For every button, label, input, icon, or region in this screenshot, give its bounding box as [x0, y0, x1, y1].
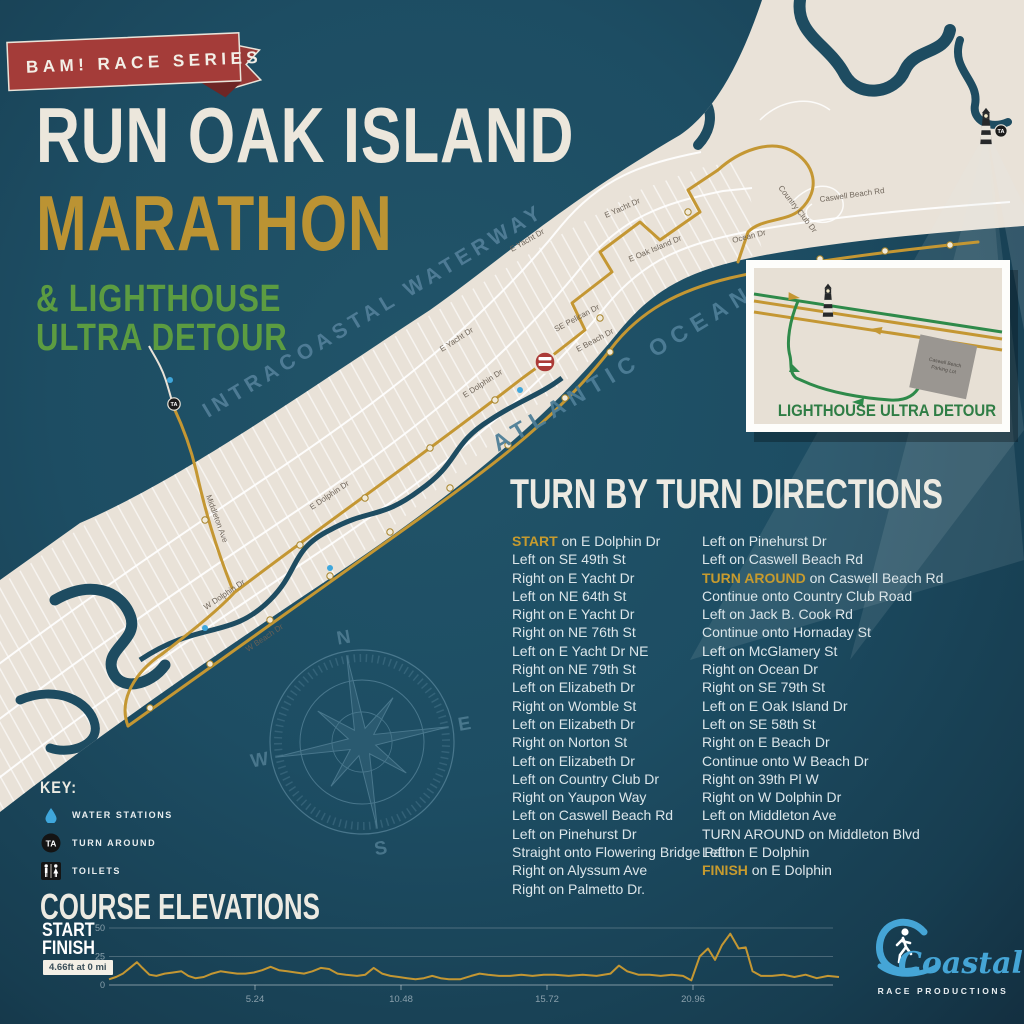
race-poster: TA	[0, 0, 1024, 1024]
key-turn-around: TA TURN AROUND	[40, 832, 173, 854]
key-label-turnaround: TURN AROUND	[72, 838, 156, 848]
y-axis-labels: 02550	[95, 923, 105, 990]
direction-item: Right on E Beach Dr	[702, 733, 1012, 751]
subtitle-ultra-detour: ULTRA DETOUR	[36, 317, 288, 359]
direction-item: Left on SE 58th St	[702, 715, 1012, 733]
svg-text:15.72: 15.72	[535, 994, 559, 1005]
direction-item: Left on Pinehurst Dr	[702, 532, 1012, 550]
directions-column-2: Left on Pinehurst Dr Left on Caswell Bea…	[702, 532, 1012, 880]
direction-item: Continue onto Country Club Road	[702, 587, 1012, 605]
coastal-race-productions-logo: Coastal RACE PRODUCTIONS	[868, 912, 1018, 1012]
logo-subtitle: RACE PRODUCTIONS	[868, 986, 1018, 996]
direction-item: TURN AROUND on Middleton Blvd	[702, 825, 1012, 843]
direction-item: Left on E Dolphin	[702, 843, 1012, 861]
event-title-line1: RUN OAK ISLAND	[36, 98, 726, 172]
key-label-toilets: TOILETS	[72, 866, 121, 876]
toilets-icon	[40, 861, 62, 881]
direction-item: Right on 39th Pl W	[702, 770, 1012, 788]
compass-n: N	[335, 627, 352, 650]
compass-e: E	[456, 713, 472, 736]
turn-by-turn-directions: TURN BY TURN DIRECTIONS START on E Dolph…	[510, 470, 1015, 532]
x-axis-labels: 5.2410.4815.7220.96	[246, 985, 705, 1005]
svg-text:0: 0	[100, 980, 105, 990]
svg-text:10.48: 10.48	[389, 994, 413, 1005]
compass-w: W	[249, 749, 270, 773]
direction-item: Left on E Oak Island Dr	[702, 697, 1012, 715]
turn-around-marker-middleton	[168, 398, 180, 410]
event-subtitle: & LIGHTHOUSE ULTRA DETOUR	[36, 280, 343, 358]
map-key: KEY: WATER STATIONS TA TURN AROUND	[40, 778, 173, 882]
direction-item: Right on SE 79th St	[702, 678, 1012, 696]
water-droplet-icon	[40, 805, 62, 825]
key-label-water: WATER STATIONS	[72, 810, 173, 820]
event-title-line2: MARATHON	[36, 186, 493, 260]
direction-item: Left on Caswell Beach Rd	[702, 550, 1012, 568]
direction-item: Left on Jack B. Cook Rd	[702, 605, 1012, 623]
subtitle-lighthouse: & LIGHTHOUSE	[36, 278, 281, 320]
direction-item: Left on McGlamery St	[702, 642, 1012, 660]
direction-item: Left on Middleton Ave	[702, 806, 1012, 824]
compass-rose: N E S W	[231, 609, 492, 879]
key-water-stations: WATER STATIONS	[40, 804, 173, 826]
svg-text:5.24: 5.24	[246, 994, 265, 1005]
start-finish-badge	[535, 352, 556, 373]
inset-label: LIGHTHOUSE ULTRA DETOUR	[778, 402, 997, 420]
direction-item: TURN AROUND on Caswell Beach Rd	[702, 569, 1012, 587]
compass-s: S	[373, 837, 389, 860]
svg-text:20.96: 20.96	[681, 994, 705, 1005]
direction-item: FINISH on E Dolphin	[702, 861, 1012, 879]
turn-around-marker-caswell	[995, 125, 1007, 137]
key-toilets: TOILETS	[40, 860, 173, 882]
svg-text:TA: TA	[46, 839, 57, 849]
directions-heading: TURN BY TURN DIRECTIONS	[510, 470, 1015, 518]
elevation-profile-line	[109, 934, 839, 981]
lighthouse-ultra-detour-inset: Caswell Beach Parking Lot LIGHTHOUSE ULT…	[746, 260, 1018, 442]
turn-around-icon: TA	[40, 833, 62, 853]
direction-item: Continue onto W Beach Dr	[702, 752, 1012, 770]
svg-text:50: 50	[95, 923, 105, 933]
direction-item: Right on W Dolphin Dr	[702, 788, 1012, 806]
svg-text:25: 25	[95, 952, 105, 962]
key-heading: KEY:	[40, 778, 173, 798]
logo-name: Coastal	[898, 946, 1023, 981]
direction-item: Continue onto Hornaday St	[702, 623, 1012, 641]
direction-item: Right on Ocean Dr	[702, 660, 1012, 678]
